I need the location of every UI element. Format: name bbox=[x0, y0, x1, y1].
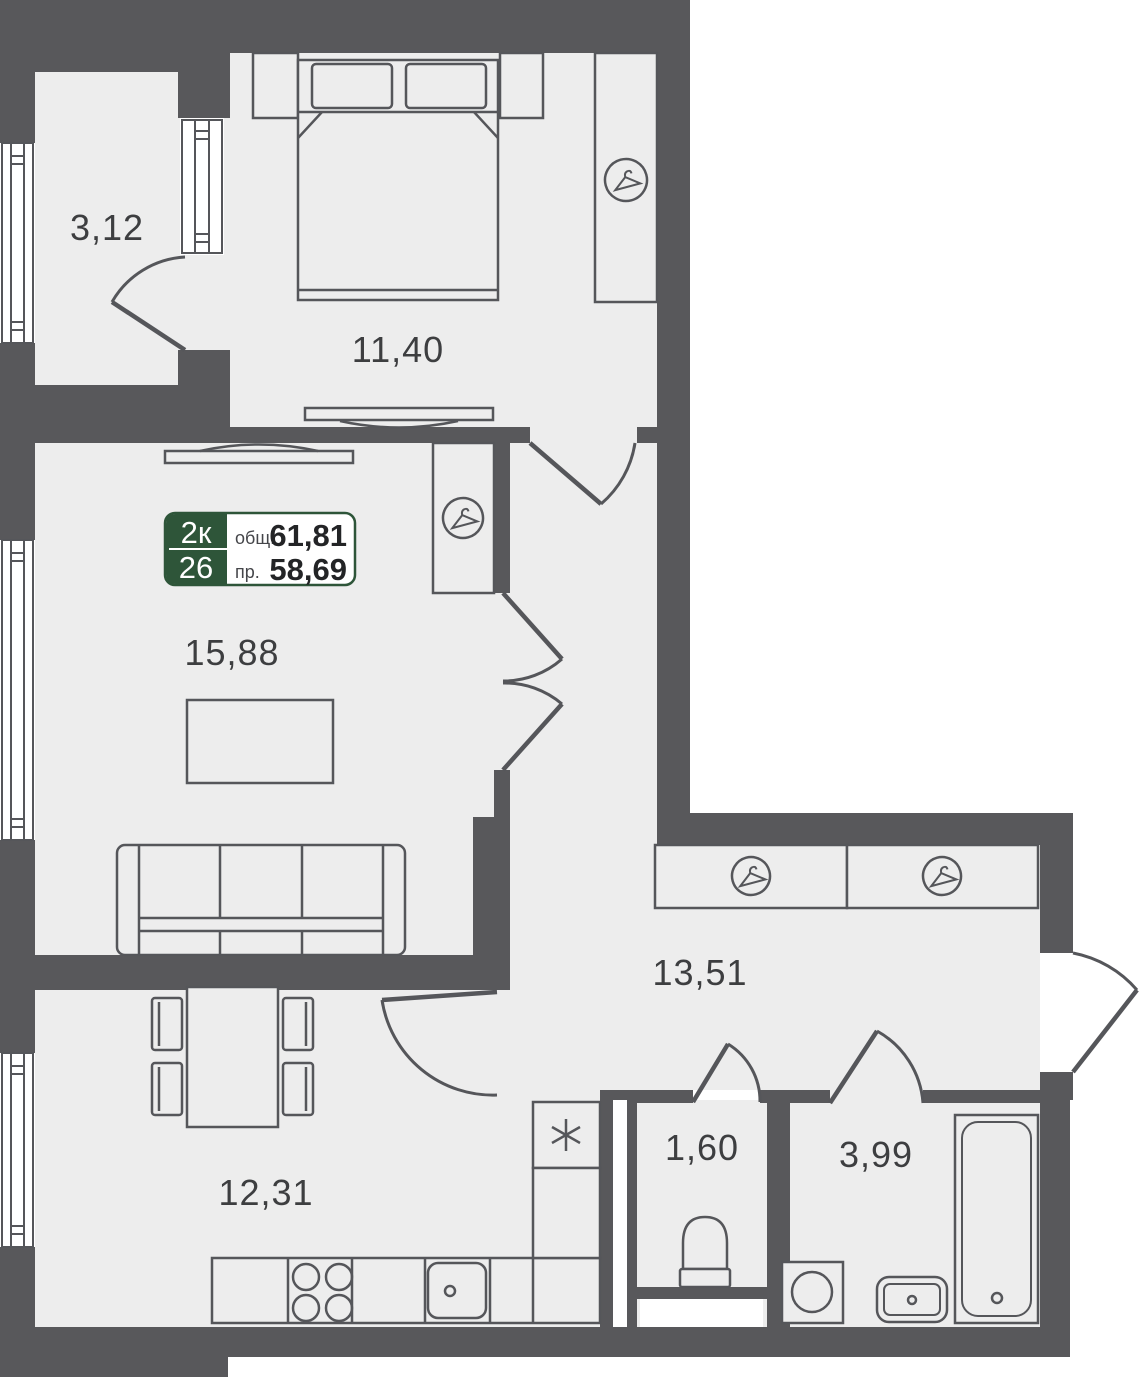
floor-plan-canvas: 3,12 11,40 15,88 13,51 12,31 1,60 3,99 2… bbox=[0, 0, 1141, 1377]
washing-machine bbox=[782, 1262, 843, 1323]
kitchen-counter bbox=[212, 1258, 600, 1323]
badge-living-area-value: 58,69 bbox=[269, 552, 347, 587]
hallway-area-label: 13,51 bbox=[652, 952, 747, 993]
entrance-door bbox=[1073, 953, 1137, 1072]
bathtub bbox=[955, 1115, 1038, 1323]
bedroom-wardrobe bbox=[595, 53, 657, 302]
balcony-bedroom-window bbox=[180, 118, 224, 255]
badge-unit-number: 26 bbox=[179, 550, 213, 585]
kitchen-window bbox=[0, 1053, 35, 1247]
bathroom-area-label: 3,99 bbox=[839, 1134, 913, 1175]
apartment-info-badge: 2к 26 общ. 61,81 пр. 58,69 bbox=[165, 513, 355, 587]
living-room-wardrobe bbox=[433, 443, 494, 593]
fridge bbox=[533, 1102, 600, 1258]
balcony-area-label: 3,12 bbox=[70, 207, 144, 248]
dining-table bbox=[187, 987, 278, 1127]
hallway-wardrobe-right bbox=[847, 845, 1038, 908]
living-room-area-label: 15,88 bbox=[184, 632, 279, 673]
toilet bbox=[680, 1217, 730, 1287]
balcony-window bbox=[0, 143, 35, 343]
wc-area-label: 1,60 bbox=[665, 1127, 739, 1168]
badge-total-area-value: 61,81 bbox=[269, 518, 347, 553]
hallway-wardrobe-left bbox=[655, 845, 847, 908]
kitchen-area-label: 12,31 bbox=[218, 1172, 313, 1213]
badge-living-area-label: пр. bbox=[235, 562, 260, 582]
floor-plan: 3,12 11,40 15,88 13,51 12,31 1,60 3,99 2… bbox=[0, 0, 1141, 1377]
coffee-table bbox=[187, 700, 333, 783]
kitchen-sink bbox=[428, 1263, 486, 1318]
bedroom-area-label: 11,40 bbox=[352, 329, 444, 370]
washbasin bbox=[877, 1277, 947, 1322]
badge-room-type: 2к bbox=[181, 515, 212, 550]
living-room-window bbox=[0, 540, 35, 840]
sofa bbox=[117, 845, 405, 955]
